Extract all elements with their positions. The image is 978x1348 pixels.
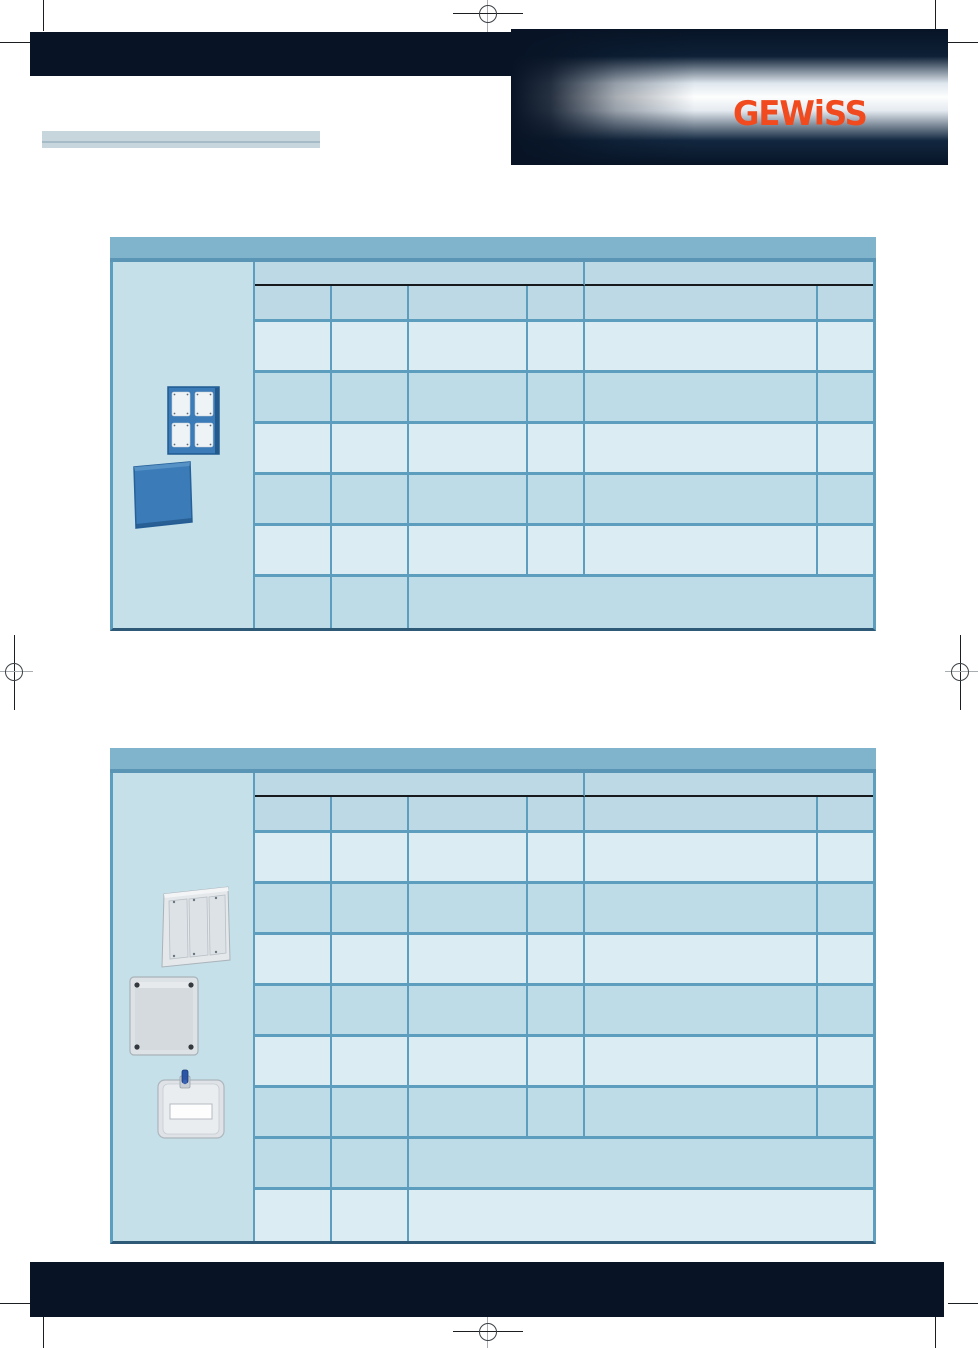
column-header (585, 797, 818, 830)
crop-mark-top-right-v (935, 0, 936, 31)
table-cell (255, 526, 332, 574)
table-row (255, 935, 873, 986)
table-cell (528, 526, 585, 574)
table-cell (255, 833, 332, 881)
title-bar-divider (42, 141, 320, 143)
table-cell (255, 935, 332, 983)
table-cell (409, 833, 528, 881)
registration-circle-mid-right (951, 663, 969, 681)
crop-mark-bottom-left-v (43, 1317, 44, 1348)
column-header (528, 286, 585, 319)
table-cell (818, 475, 873, 523)
footer-bar (30, 1262, 944, 1317)
table-1-group-header-row (255, 262, 873, 286)
gewiss-logo: GEWiSS (733, 93, 899, 134)
table-cell (332, 1190, 409, 1241)
table-row (255, 475, 873, 526)
table-row (255, 884, 873, 935)
registration-circle-top-center (479, 5, 497, 23)
table-2-group-1 (255, 773, 585, 797)
table-row-merged (255, 1139, 873, 1190)
table-cell (585, 884, 818, 932)
table-1-column-header-row (255, 286, 873, 322)
column-header (409, 797, 528, 830)
table-row (255, 986, 873, 1037)
table-cell (818, 1037, 873, 1085)
table-cell (409, 986, 528, 1034)
table-2-group-2 (585, 773, 873, 797)
table-cell (409, 322, 528, 370)
table-cell (585, 373, 818, 421)
table-cell (409, 373, 528, 421)
table-2-column-header-row (255, 797, 873, 833)
product-table-1 (110, 237, 876, 631)
registration-circle-bottom-center (479, 1323, 497, 1341)
table-cell (528, 833, 585, 881)
product-image-modular-panel-3-doors (158, 885, 234, 969)
brand-gradient-band: GEWiSS (511, 29, 948, 165)
table-cell (585, 475, 818, 523)
table-cell (818, 884, 873, 932)
table-cell (255, 424, 332, 472)
table-cell (332, 986, 409, 1034)
table-row (255, 322, 873, 373)
page-title-bar (42, 131, 320, 148)
table-cell (528, 1037, 585, 1085)
table-cell (332, 1139, 409, 1187)
table-cell (818, 833, 873, 881)
table-cell (585, 935, 818, 983)
table-cell (528, 373, 585, 421)
table-cell (332, 577, 409, 628)
table-cell (818, 1088, 873, 1136)
table-cell (332, 526, 409, 574)
table-cell (409, 935, 528, 983)
table-cell (528, 884, 585, 932)
product-image-enclosure-box (127, 973, 201, 1059)
table-cell (585, 833, 818, 881)
table-cell (818, 526, 873, 574)
table-row (255, 526, 873, 577)
column-header (528, 797, 585, 830)
table-cell (528, 1088, 585, 1136)
table-cell (332, 424, 409, 472)
table-row (255, 1037, 873, 1088)
product-image-flanged-window-panel (153, 1068, 229, 1144)
product-table-2 (110, 748, 876, 1244)
table-1-grid (255, 262, 873, 628)
table-row (255, 424, 873, 475)
table-cell (255, 322, 332, 370)
column-header (818, 797, 873, 830)
crop-mark-top-right-h (947, 42, 978, 43)
table-row (255, 1088, 873, 1139)
table-1-body (110, 262, 876, 631)
crop-mark-bottom-right-h (948, 1303, 978, 1304)
column-header (585, 286, 818, 319)
table-cell (528, 475, 585, 523)
table-2-group-header-row (255, 773, 873, 797)
column-header (255, 797, 332, 830)
table-cell (255, 1037, 332, 1085)
column-header (818, 286, 873, 319)
table-row-merged (255, 577, 873, 628)
table-cell (332, 322, 409, 370)
table-row (255, 833, 873, 884)
table-1-image-column (113, 262, 255, 628)
table-cell (332, 1088, 409, 1136)
table-cell (255, 986, 332, 1034)
registration-circle-mid-left (5, 663, 23, 681)
table-cell (585, 424, 818, 472)
table-cell-merged (409, 577, 873, 628)
table-cell (585, 322, 818, 370)
table-cell (818, 935, 873, 983)
header-bar (30, 32, 511, 76)
crop-mark-bottom-right-v (935, 1317, 936, 1348)
table-cell (332, 833, 409, 881)
table-2-body (110, 773, 876, 1244)
table-cell (585, 986, 818, 1034)
table-cell (332, 373, 409, 421)
table-1-group-2 (585, 262, 873, 286)
table-row (255, 373, 873, 424)
table-1-header-band (110, 237, 876, 262)
table-cell (409, 475, 528, 523)
table-cell (409, 1037, 528, 1085)
table-cell (528, 935, 585, 983)
table-cell (409, 526, 528, 574)
table-cell (332, 884, 409, 932)
table-cell (818, 373, 873, 421)
table-cell (255, 577, 332, 628)
table-cell (255, 475, 332, 523)
table-cell (585, 1037, 818, 1085)
crop-mark-bottom-left-h (0, 1303, 30, 1304)
table-2-grid (255, 773, 873, 1241)
column-header (332, 286, 409, 319)
catalog-page: GEWiSS (0, 0, 978, 1348)
table-row-merged (255, 1190, 873, 1241)
table-cell (818, 322, 873, 370)
table-cell (528, 986, 585, 1034)
product-image-flanged-panel-4-openings (165, 385, 222, 457)
column-header (255, 286, 332, 319)
table-cell (409, 1088, 528, 1136)
table-cell (585, 1088, 818, 1136)
table-cell (332, 1037, 409, 1085)
table-cell (409, 884, 528, 932)
column-header (409, 286, 528, 319)
product-image-blind-lid (132, 460, 194, 530)
table-cell (255, 1139, 332, 1187)
column-header (332, 797, 409, 830)
table-cell (255, 884, 332, 932)
table-2-header-band (110, 748, 876, 773)
table-cell-merged (409, 1190, 873, 1241)
table-cell (528, 424, 585, 472)
table-cell (255, 1190, 332, 1241)
table-1-group-1 (255, 262, 585, 286)
table-2-image-column (113, 773, 255, 1241)
table-cell (818, 424, 873, 472)
crop-mark-top-left-v (43, 0, 44, 31)
table-cell (818, 986, 873, 1034)
table-cell (332, 475, 409, 523)
table-cell (528, 322, 585, 370)
table-cell (409, 424, 528, 472)
table-cell-merged (409, 1139, 873, 1187)
table-cell (255, 1088, 332, 1136)
crop-mark-top-left-h (0, 42, 30, 43)
table-cell (585, 526, 818, 574)
table-cell (255, 373, 332, 421)
table-cell (332, 935, 409, 983)
